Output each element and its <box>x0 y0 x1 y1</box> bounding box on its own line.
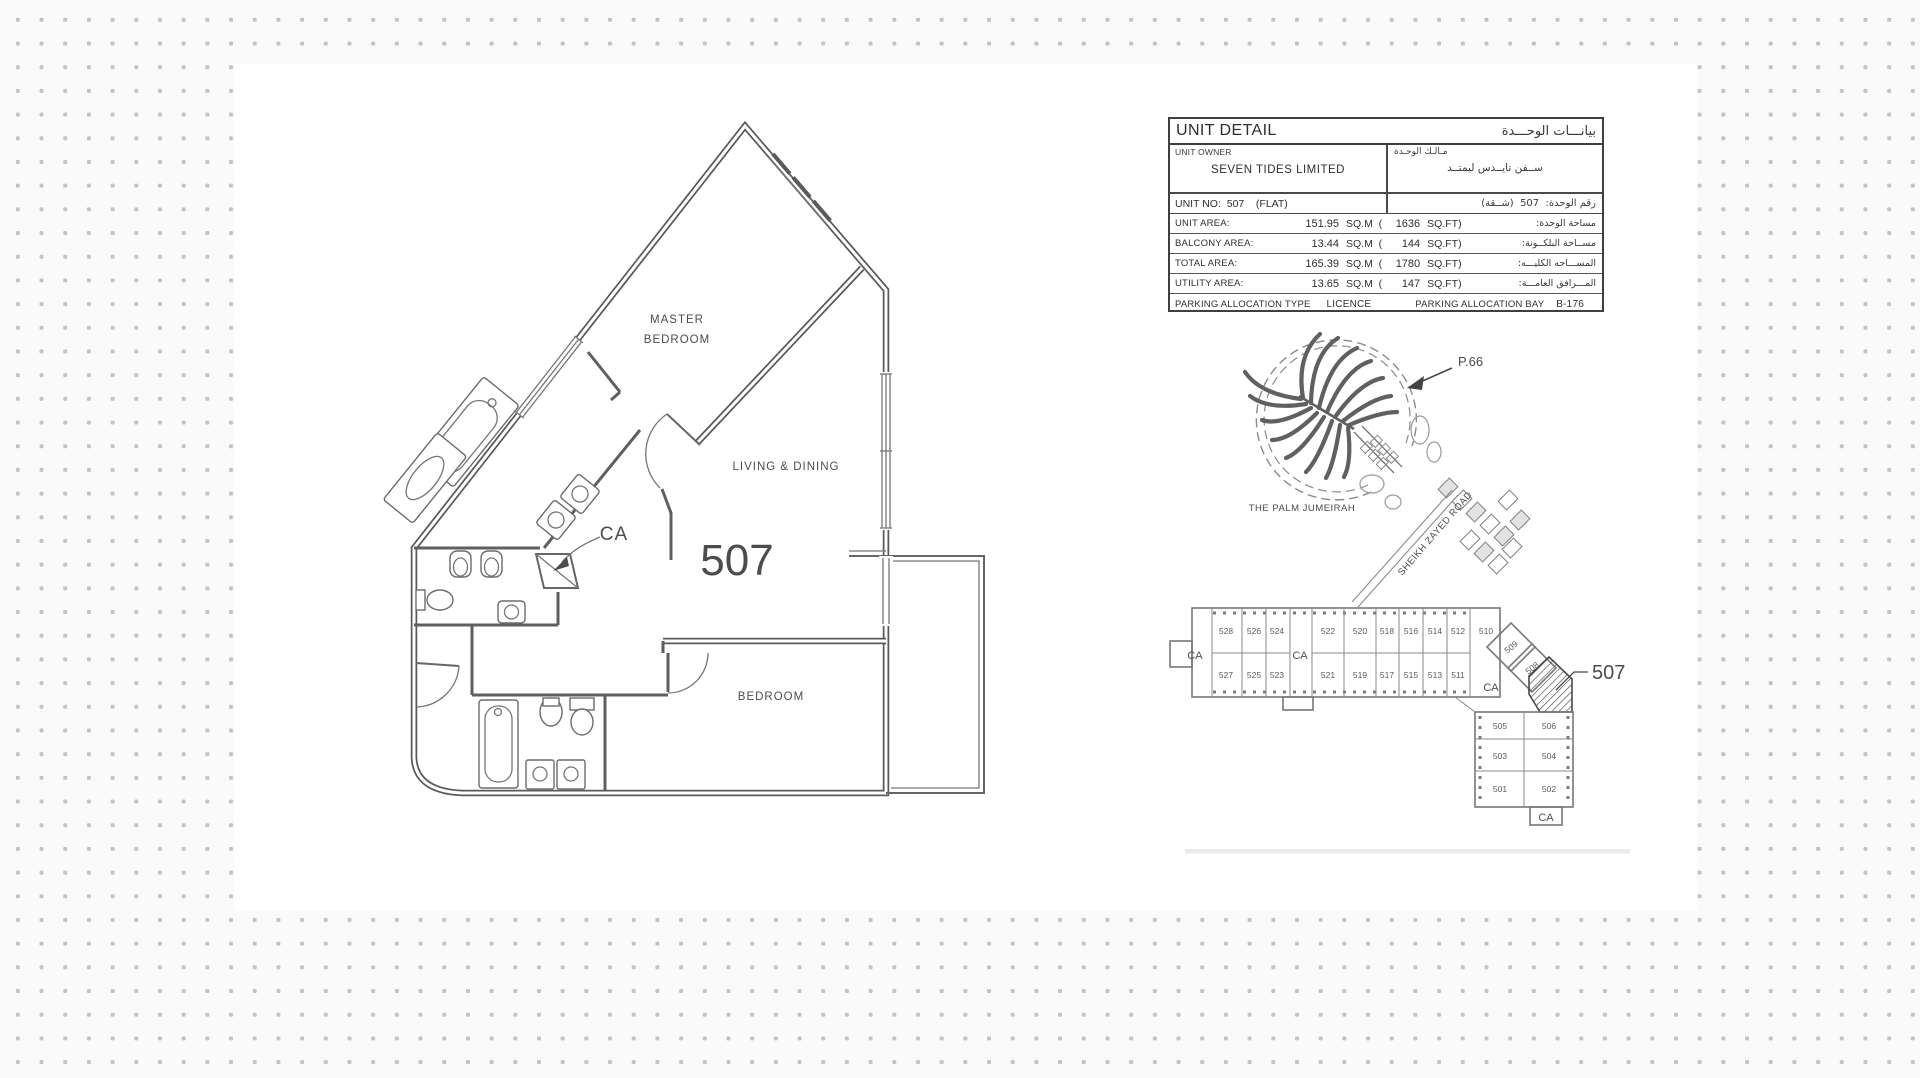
unit-number-label: 507 <box>700 536 773 585</box>
floor-plan-drawing: MASTER BEDROOM LIVING & DINING BEDROOM 5… <box>383 126 984 793</box>
area-row-total: TOTAL AREA: 165.39 SQ.M ( 1780 SQ.FT) ال… <box>1170 254 1602 274</box>
unit-no-en: UNIT NO: 507 (FLAT) <box>1170 194 1388 213</box>
unit-detail-table: UNIT DETAIL بيانـــات الوحـــدة UNIT OWN… <box>1168 117 1604 312</box>
window-left-diagonal <box>515 336 583 418</box>
unit-number: 522 <box>1321 626 1335 636</box>
ca-label: CA <box>1483 682 1499 694</box>
scan-artifact <box>1185 849 1630 854</box>
wc-toilet <box>416 590 525 623</box>
unit-number: 501 <box>1493 784 1507 794</box>
table-header: UNIT DETAIL بيانـــات الوحـــدة <box>1170 119 1602 145</box>
ca-duct <box>536 554 578 588</box>
table-title-ar: بيانـــات الوحـــدة <box>1502 124 1596 139</box>
parking-type-label: PARKING ALLOCATION TYPE <box>1175 299 1311 310</box>
unit-number: 526 <box>1247 626 1261 636</box>
master-bedroom-label-line2: BEDROOM <box>644 334 710 346</box>
mainland-blocks <box>1438 478 1530 574</box>
master-door <box>646 414 700 488</box>
wardrobe-stub <box>588 352 620 400</box>
window-right-wall <box>879 372 893 530</box>
key-plan: 507 528 526 524 522 520 518 516 514 512 … <box>1170 608 1630 854</box>
owner-row: UNIT OWNER SEVEN TIDES LIMITED مـالـك ال… <box>1170 145 1602 194</box>
wall-hatch-marks <box>769 153 832 224</box>
balcony-door <box>879 556 893 626</box>
ca-label: CA <box>1538 812 1554 824</box>
owner-label: UNIT OWNER <box>1175 147 1381 157</box>
unit-number: 514 <box>1428 626 1442 636</box>
unit-number: 525 <box>1247 670 1261 680</box>
table-title-en: UNIT DETAIL <box>1176 122 1277 140</box>
unit-no-row: UNIT NO: 507 (FLAT) رقم الوحدة: 507 (شــ… <box>1170 194 1602 214</box>
unit-number: 503 <box>1493 751 1507 761</box>
unit-number: 509 <box>1502 639 1520 656</box>
ca-label: CA <box>1292 650 1308 662</box>
unit-number: 524 <box>1270 626 1284 636</box>
living-dining-label: LIVING & DINING <box>732 461 839 473</box>
map-marker-label: P.66 <box>1458 354 1483 369</box>
entrance-door <box>416 663 459 707</box>
unit-number: 516 <box>1404 626 1418 636</box>
coastline-shapes <box>1360 416 1441 509</box>
unit-number: 528 <box>1219 626 1233 636</box>
unit-number: 518 <box>1380 626 1394 636</box>
bedroom-door <box>668 653 708 693</box>
bedroom-label: BEDROOM <box>738 691 804 703</box>
parking-row: PARKING ALLOCATION TYPE LICENCE PARKING … <box>1170 294 1602 314</box>
location-map: P.66 THE PALM JUMEIRAH SHEIKH ZAYED ROAD <box>1245 334 1530 607</box>
unit-number: 502 <box>1542 784 1556 794</box>
ca-label: CA <box>1187 650 1203 662</box>
unit-number: 527 <box>1219 670 1233 680</box>
bathroom2-fixtures <box>479 698 594 789</box>
area-row-utility: UTILITY AREA: 13.65 SQ.M ( 147 SQ.FT) ال… <box>1170 274 1602 294</box>
unit-no-ar: رقم الوحدة: 507 (شــقة) <box>1388 198 1602 209</box>
sheikh-zayed-road-label: SHEIKH ZAYED ROAD <box>1396 490 1475 578</box>
keyplan-cell-lines <box>1212 608 1470 697</box>
keyplan-507-label: 507 <box>1592 662 1625 684</box>
palm-jumeirah-label: THE PALM JUMEIRAH <box>1249 503 1356 514</box>
unit-number: 520 <box>1353 626 1367 636</box>
unit-number: 512 <box>1451 626 1465 636</box>
unit-number: 505 <box>1493 721 1507 731</box>
unit-number: 517 <box>1380 670 1394 680</box>
toilet-icon <box>450 551 502 577</box>
unit-number: 515 <box>1404 670 1418 680</box>
parking-bay-label: PARKING ALLOCATION BAY <box>1415 299 1544 310</box>
unit-number: 513 <box>1428 670 1442 680</box>
unit-number: 506 <box>1542 721 1556 731</box>
master-bedroom-label-line1: MASTER <box>650 314 704 326</box>
owner-value-ar: ســفن تايــدس ليمتــد <box>1394 162 1596 174</box>
area-row-unit: UNIT AREA: 151.95 SQ.M ( 1636 SQ.FT) مسا… <box>1170 214 1602 234</box>
ca-label: CA <box>600 524 628 545</box>
map-marker-arrow <box>1407 368 1452 390</box>
parking-type-value: LICENCE <box>1327 299 1372 310</box>
drawings: MASTER BEDROOM LIVING & DINING BEDROOM 5… <box>0 0 1920 1078</box>
owner-value: SEVEN TIDES LIMITED <box>1175 164 1381 176</box>
unit-number: 521 <box>1321 670 1335 680</box>
unit-number: 519 <box>1353 670 1367 680</box>
road-lines <box>1352 490 1458 607</box>
balcony-wall <box>886 556 984 793</box>
unit-number: 511 <box>1451 670 1465 680</box>
unit-number: 523 <box>1270 670 1284 680</box>
unit-number: 504 <box>1542 751 1556 761</box>
page-canvas: MASTER BEDROOM LIVING & DINING BEDROOM 5… <box>0 0 1920 1078</box>
area-row-balcony: BALCONY AREA: 13.44 SQ.M ( 144 SQ.FT) مس… <box>1170 234 1602 254</box>
parking-bay-value: B-176 <box>1556 299 1584 310</box>
unit-number: 510 <box>1479 626 1493 636</box>
palm-trunk <box>1354 426 1402 473</box>
owner-label-ar: مـالـك الوحـدة <box>1394 147 1596 157</box>
